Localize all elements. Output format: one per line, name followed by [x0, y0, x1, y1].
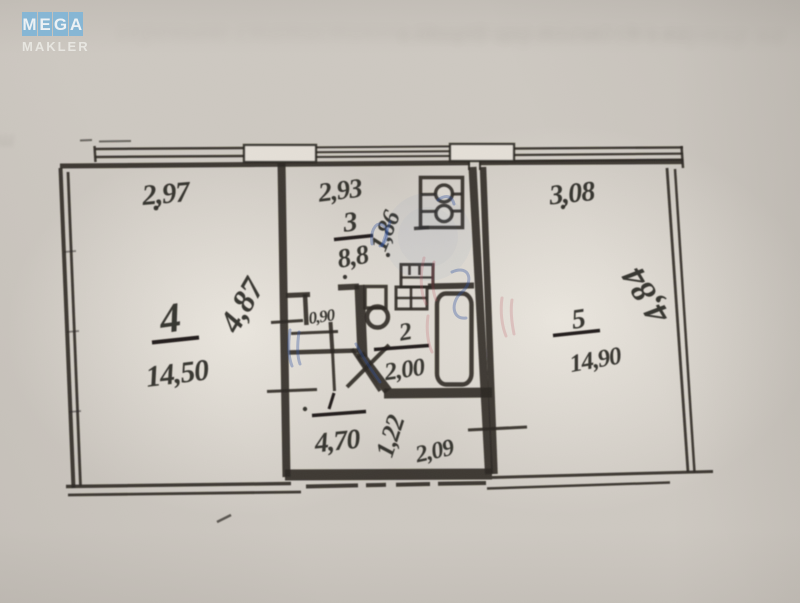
svg-text:4: 4: [156, 295, 184, 344]
svg-text:3,08: 3,08: [547, 176, 597, 212]
svg-text:1,22: 1,22: [370, 411, 411, 460]
svg-text:3: 3: [341, 206, 359, 238]
svg-text:5: 5: [570, 303, 588, 336]
svg-text:4,87: 4,87: [211, 270, 272, 339]
svg-text:4,70: 4,70: [312, 424, 362, 460]
svg-text:2,97: 2,97: [140, 176, 193, 212]
svg-text:8,8: 8,8: [335, 239, 372, 274]
svg-text:4,84: 4,84: [615, 260, 678, 331]
svg-text:0,90: 0,90: [307, 305, 337, 328]
svg-text:14,90: 14,90: [568, 342, 625, 378]
svg-text:2,93: 2,93: [316, 173, 364, 208]
svg-text:2: 2: [396, 318, 414, 347]
svg-text:1,86: 1,86: [366, 206, 406, 254]
svg-text:2,00: 2,00: [382, 354, 428, 387]
svg-text:2,09: 2,09: [412, 435, 457, 469]
svg-text:14,50: 14,50: [144, 353, 211, 393]
